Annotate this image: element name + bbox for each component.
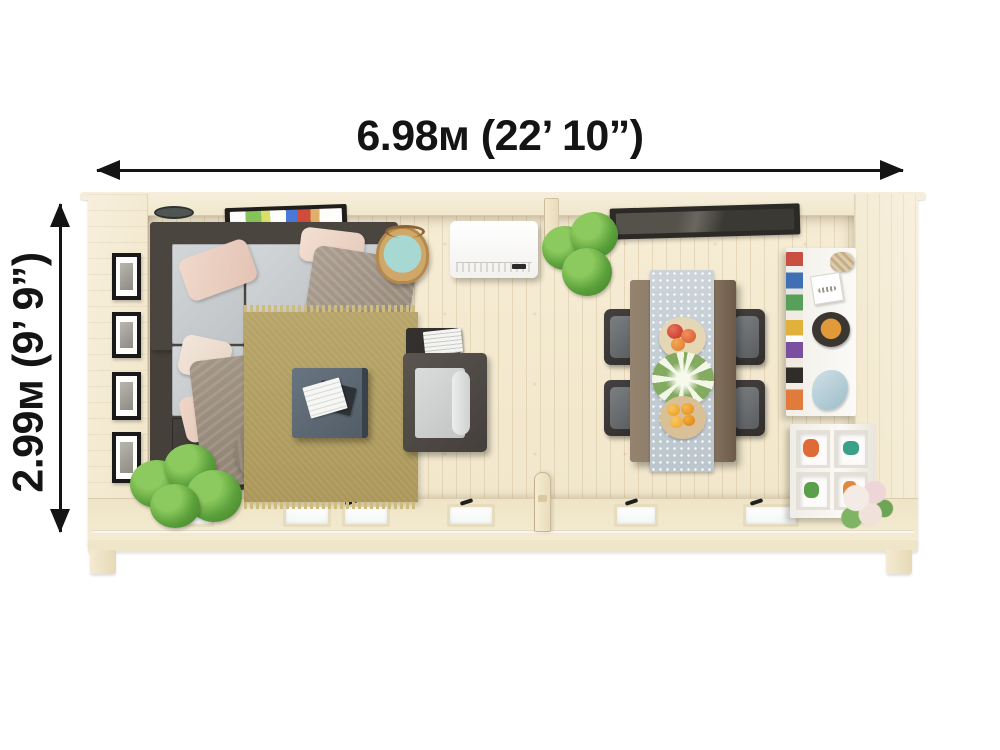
arrowhead-left-icon	[96, 160, 120, 180]
open-door	[534, 472, 551, 532]
book-spines	[786, 252, 803, 410]
picture-frame	[112, 372, 141, 420]
flower-bouquet	[840, 476, 894, 534]
arrowhead-right-icon	[880, 160, 904, 180]
potted-plant	[128, 442, 246, 530]
height-dimension-arrow	[59, 204, 62, 532]
decor-bowl	[812, 312, 850, 347]
storage-cube	[796, 472, 830, 510]
rooflight-glass	[616, 209, 795, 235]
picture-frame	[112, 253, 141, 300]
hanging-plant	[542, 212, 622, 300]
rooflight	[610, 203, 801, 239]
window-5	[614, 504, 658, 527]
ac-display	[512, 264, 526, 269]
window-sill	[92, 530, 914, 533]
foundation-beam	[88, 540, 918, 552]
armchair	[403, 353, 487, 452]
book-stack	[423, 328, 463, 356]
width-dimension-arrow	[97, 169, 903, 172]
citrus-bowl	[660, 396, 706, 439]
shelf-unit	[786, 248, 856, 416]
greeting-card	[810, 272, 844, 305]
window-4	[447, 504, 495, 527]
arrowhead-down-icon	[50, 509, 70, 533]
armchair-pillow	[452, 371, 470, 435]
knot-ornament	[830, 252, 854, 272]
height-dimension-label: 2.99м (9’ 9”)	[5, 205, 54, 541]
foundation-leg	[90, 550, 116, 574]
storage-basket	[376, 226, 429, 284]
storage-cube	[834, 430, 868, 468]
storage-cube	[796, 430, 830, 468]
foundation-leg	[886, 550, 912, 574]
blue-shell-bowl	[812, 370, 848, 410]
air-conditioner	[450, 221, 538, 278]
floor-plan-image: 6.98м (22’ 10”) 2.99м (9’ 9”)	[0, 0, 1000, 750]
width-dimension-label: 6.98м (22’ 10”)	[200, 112, 800, 161]
picture-frame	[112, 312, 141, 358]
wall-light-icon	[154, 206, 194, 219]
arrowhead-up-icon	[50, 203, 70, 227]
